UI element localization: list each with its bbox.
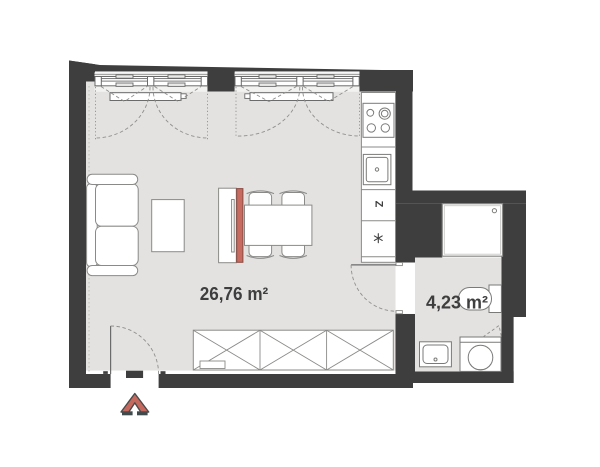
svg-text:26,76 m²: 26,76 m²: [200, 284, 269, 304]
svg-text:Z: Z: [373, 201, 385, 208]
svg-text:4,23 m²: 4,23 m²: [426, 292, 488, 312]
